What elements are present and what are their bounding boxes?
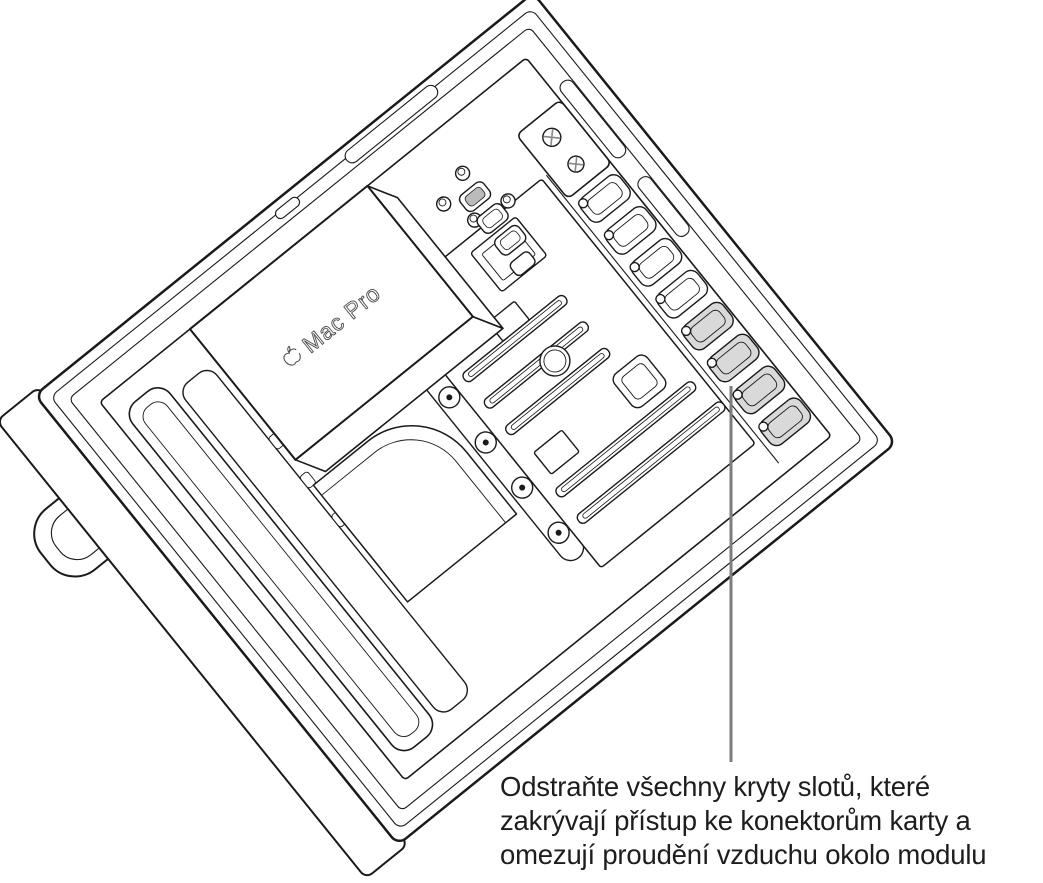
chassis: Mac Pro bbox=[0, 0, 900, 878]
callout-text-line: Odstraňte všechny kryty slotů, které bbox=[500, 770, 1030, 804]
callout-text: Odstraňte všechny kryty slotů, které zak… bbox=[500, 770, 1030, 872]
mac-pro-interior-illustration: Mac Pro bbox=[0, 0, 1043, 883]
callout-text-line: omezují proudění vzduchu okolo modulu bbox=[500, 838, 1030, 872]
callout-text-line: zakrývají přístup ke konektorům karty a bbox=[500, 804, 1030, 838]
figure-canvas: Mac Pro bbox=[0, 0, 1043, 883]
